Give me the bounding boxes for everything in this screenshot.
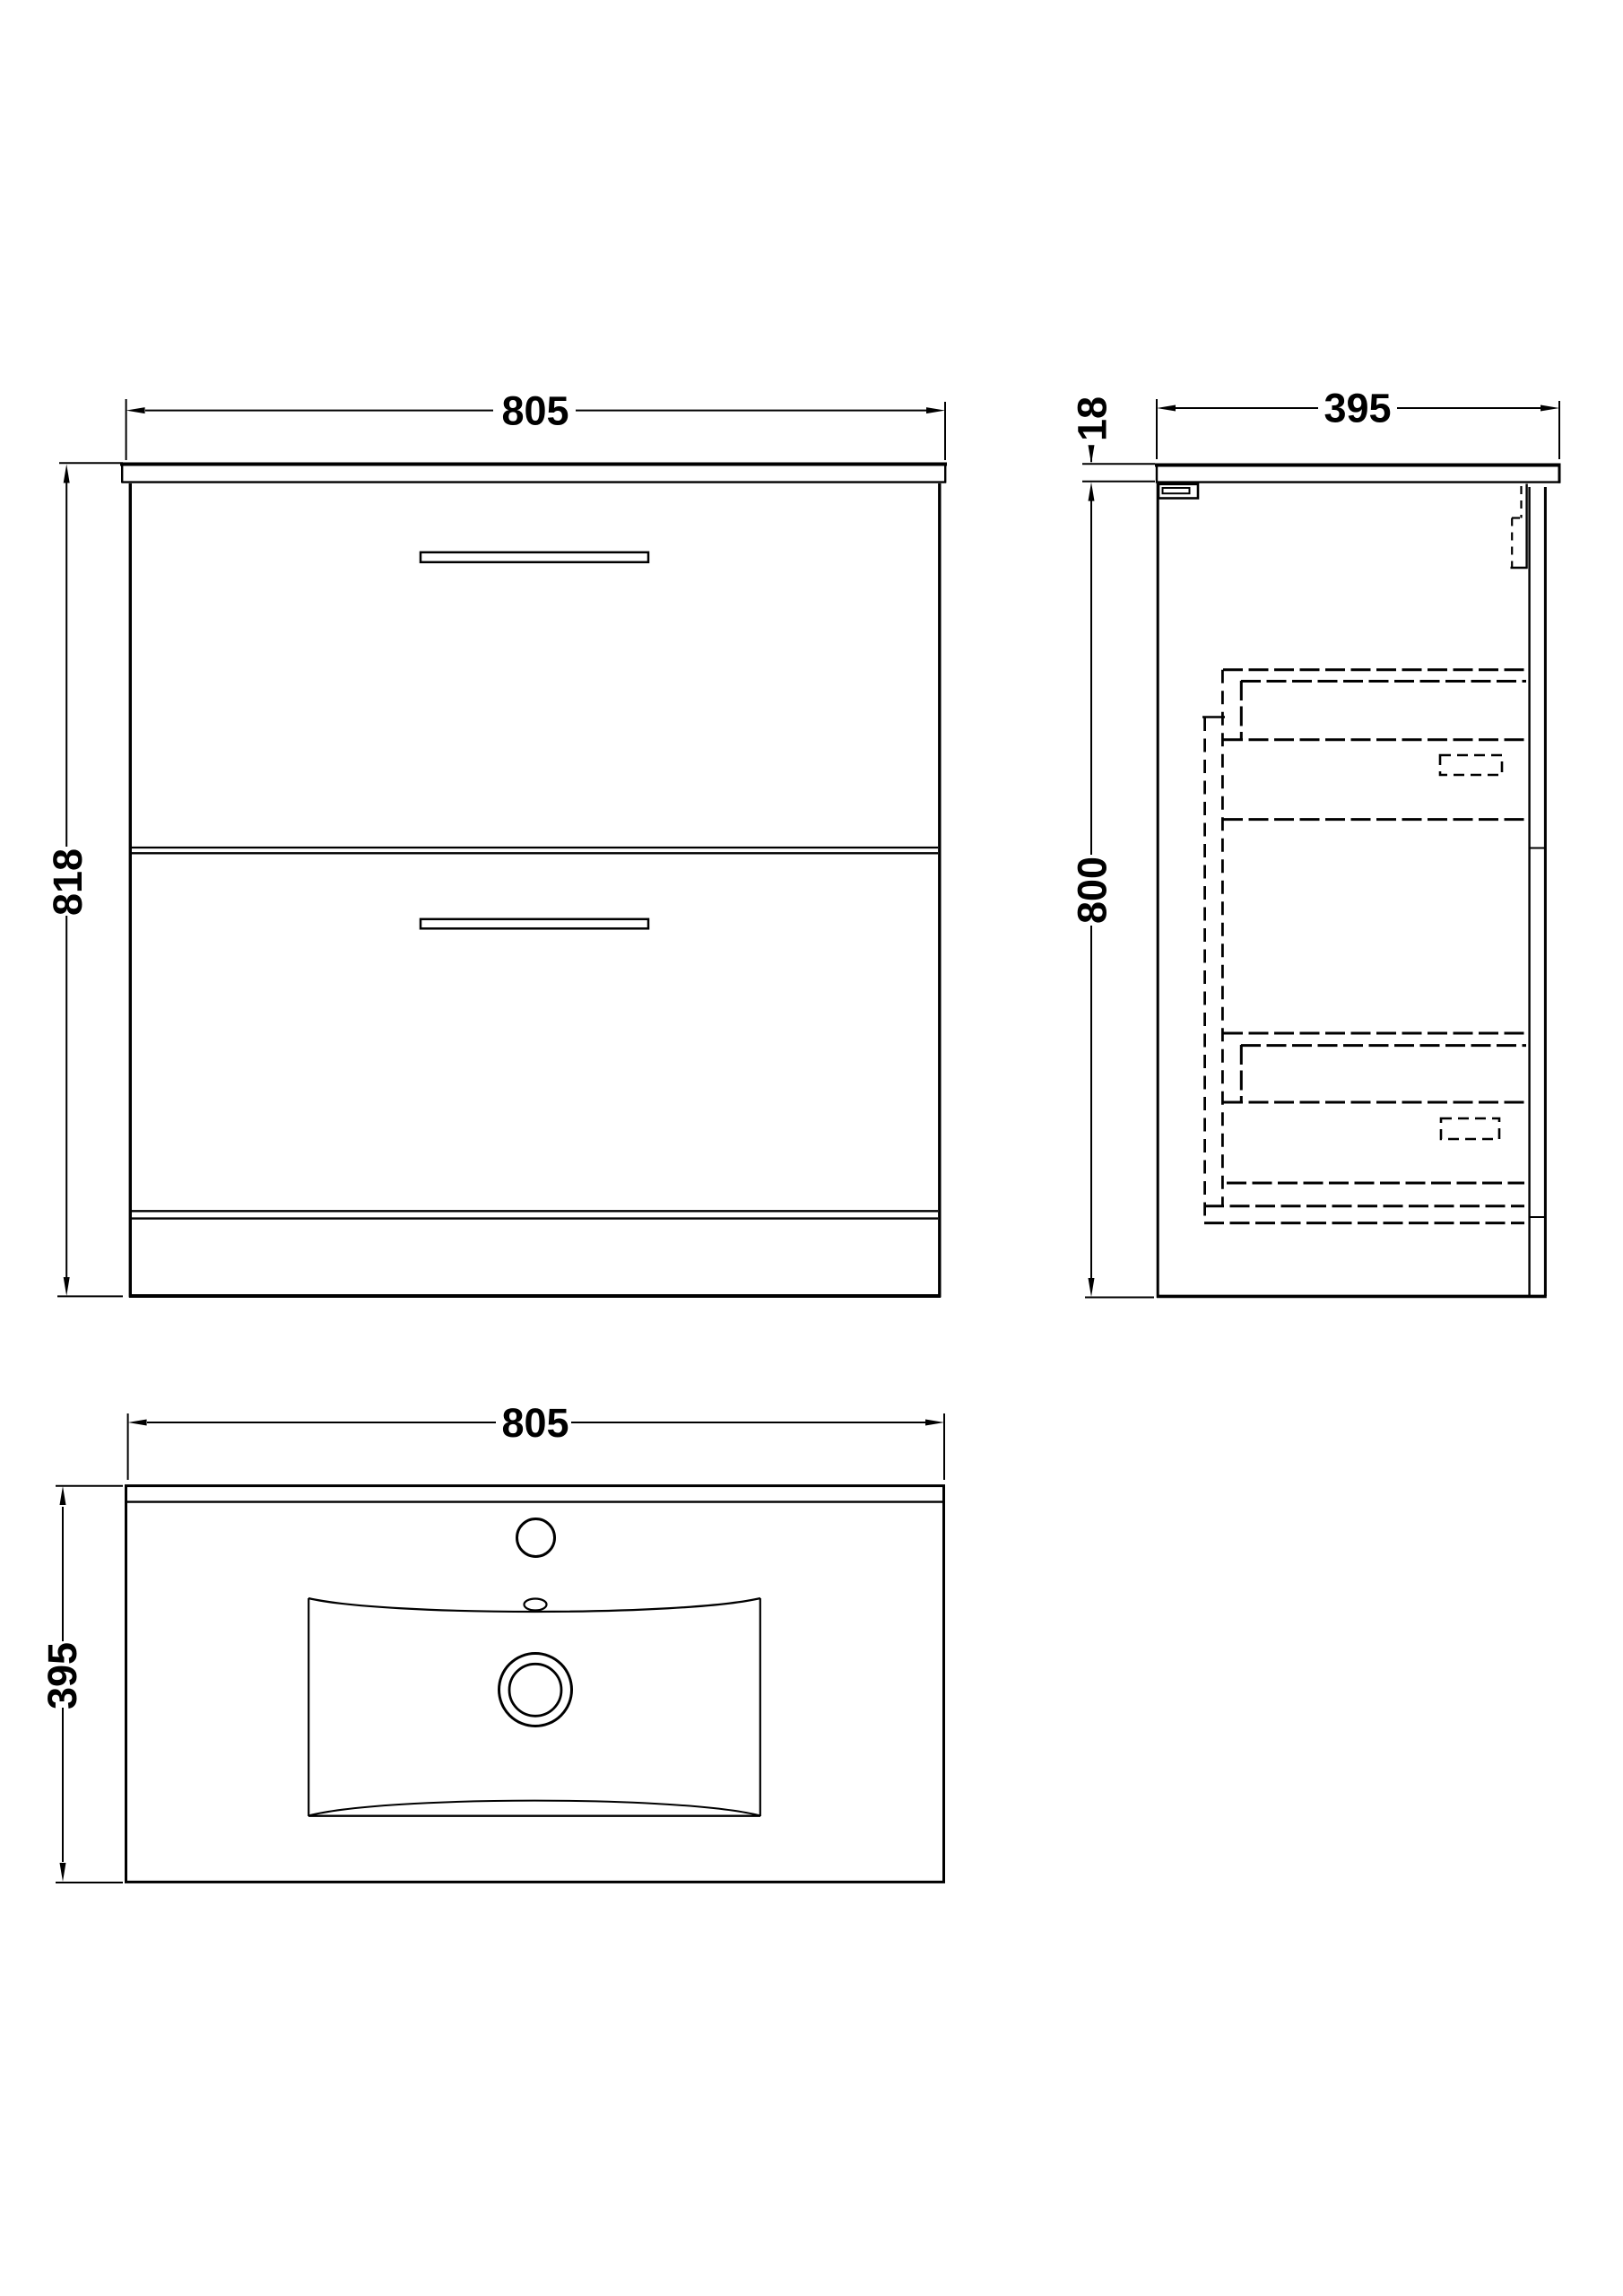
svg-text:395: 395 <box>1324 386 1391 431</box>
svg-text:395: 395 <box>39 1642 85 1709</box>
svg-text:805: 805 <box>501 1400 568 1446</box>
svg-text:818: 818 <box>45 848 91 916</box>
svg-text:800: 800 <box>1070 857 1115 924</box>
svg-text:18: 18 <box>1070 396 1115 441</box>
svg-text:805: 805 <box>501 388 568 434</box>
